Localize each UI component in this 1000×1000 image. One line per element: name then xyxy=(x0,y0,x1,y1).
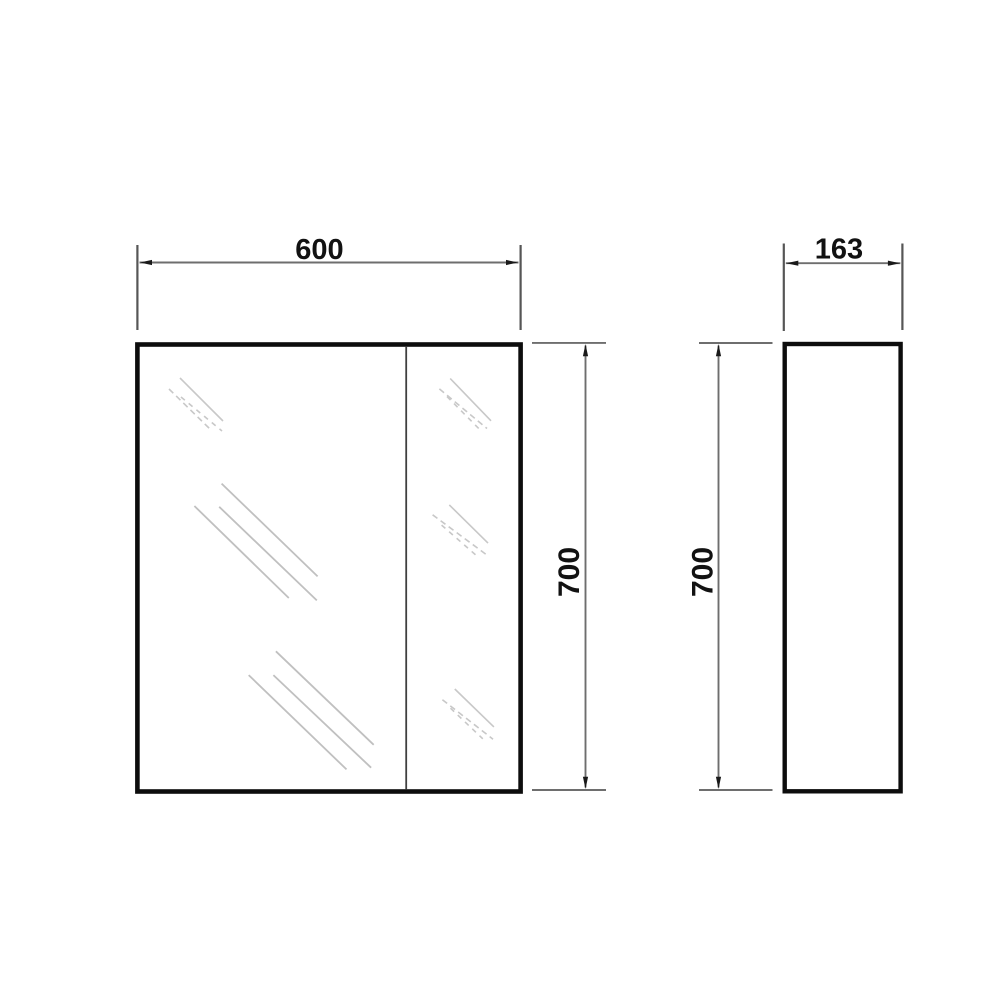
svg-text:163: 163 xyxy=(815,234,863,266)
svg-text:600: 600 xyxy=(295,234,343,266)
svg-text:700: 700 xyxy=(687,547,720,597)
svg-text:700: 700 xyxy=(553,547,586,597)
